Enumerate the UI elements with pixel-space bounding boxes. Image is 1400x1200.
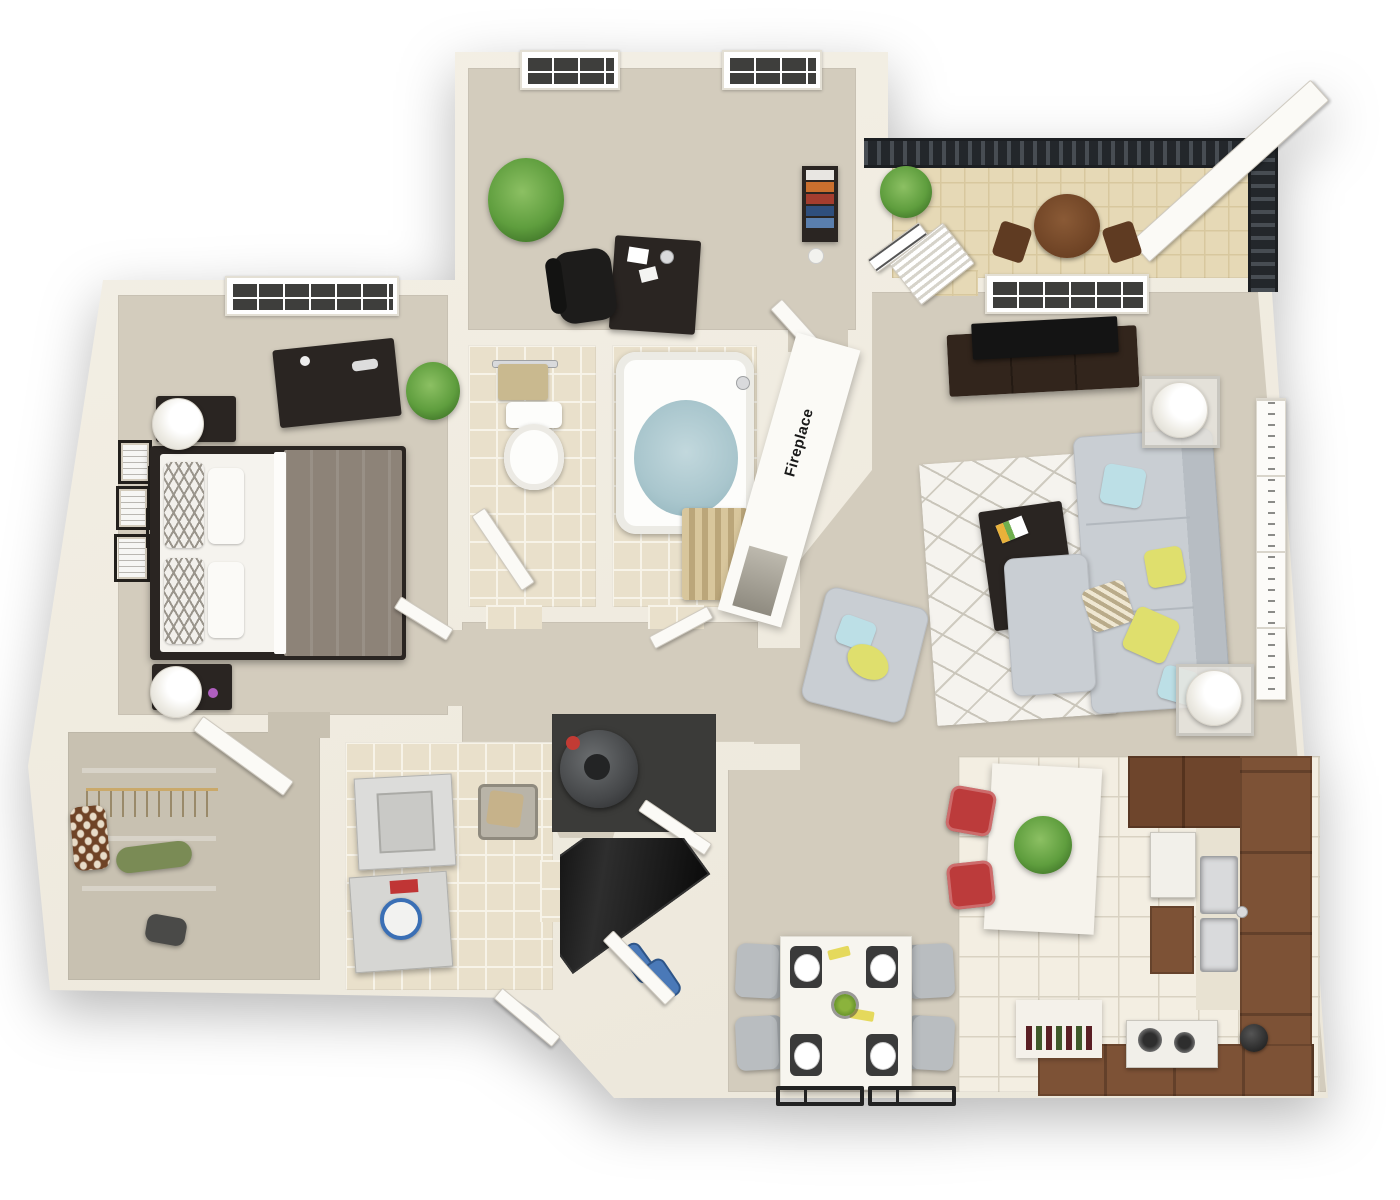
books bbox=[806, 170, 834, 180]
grate-rack bbox=[868, 1086, 956, 1106]
fridge bbox=[1150, 832, 1196, 898]
basket-clothes bbox=[486, 790, 524, 828]
upper-cabinets bbox=[1128, 756, 1242, 828]
wall-frame bbox=[116, 486, 150, 530]
stove-burner bbox=[1174, 1032, 1195, 1053]
centerpiece bbox=[834, 994, 856, 1016]
books bbox=[806, 218, 834, 228]
detergent-box bbox=[390, 879, 419, 894]
dining-chair bbox=[735, 1015, 786, 1071]
books bbox=[806, 182, 834, 192]
table-lamp-bottom bbox=[150, 666, 202, 718]
doorway-bedroom-closet bbox=[268, 712, 330, 738]
kettle bbox=[1240, 1024, 1268, 1052]
grate-rack bbox=[776, 1086, 864, 1106]
office-plant bbox=[488, 158, 564, 242]
dining-chair bbox=[735, 943, 786, 999]
balcony-plant bbox=[880, 166, 932, 218]
books bbox=[806, 194, 834, 204]
window-panes bbox=[231, 282, 393, 310]
office-window-right bbox=[722, 50, 822, 90]
window-panes bbox=[991, 280, 1143, 308]
water-heater-valve bbox=[566, 736, 580, 750]
bed-blanket bbox=[284, 450, 402, 656]
dining-chair bbox=[905, 943, 956, 999]
bed-pillow bbox=[208, 468, 244, 544]
dining-chair bbox=[905, 1015, 956, 1071]
sofa-chaise bbox=[1003, 553, 1096, 697]
doorway-hall-living bbox=[754, 648, 808, 744]
dresser-decor bbox=[300, 356, 310, 366]
shelf-flowers bbox=[808, 248, 824, 264]
patio-table bbox=[1034, 194, 1100, 258]
base-cabinet bbox=[1150, 906, 1194, 974]
closet-shelf bbox=[82, 768, 216, 773]
office-window-left bbox=[520, 50, 620, 90]
kitchen-sink bbox=[1200, 856, 1238, 914]
bedroom-plant bbox=[406, 362, 460, 420]
wall-art bbox=[1256, 398, 1286, 700]
desk-paper bbox=[627, 247, 649, 265]
bed-pillow bbox=[208, 562, 244, 638]
apartment-floor-plan: Fireplace bbox=[0, 0, 1400, 1200]
kitchen-sink bbox=[1200, 918, 1238, 972]
water-heater-cap bbox=[584, 754, 610, 780]
closet-shelf bbox=[82, 886, 216, 891]
window-panes bbox=[728, 56, 816, 84]
plate bbox=[870, 954, 896, 982]
plate bbox=[870, 1042, 896, 1070]
plate bbox=[794, 1042, 820, 1070]
sink-faucet bbox=[1236, 906, 1248, 918]
floor-lamp-bottom bbox=[1186, 670, 1242, 726]
floor-plan-stage: Fireplace bbox=[0, 0, 1400, 1200]
sofa-pillow-yellow bbox=[1143, 545, 1187, 589]
balcony-railing-top bbox=[864, 138, 1272, 168]
island-plant bbox=[1014, 816, 1072, 874]
office-desk bbox=[609, 235, 701, 335]
bed-pillow bbox=[164, 558, 204, 644]
dresser bbox=[272, 338, 401, 428]
toilet-bowl bbox=[504, 424, 564, 490]
towel bbox=[498, 364, 548, 400]
living-room-window bbox=[985, 274, 1149, 314]
bedroom-window bbox=[225, 276, 399, 316]
duffel-bag bbox=[69, 805, 110, 872]
bed-sheet-fold bbox=[274, 452, 286, 654]
plate bbox=[794, 954, 820, 982]
flower-vase bbox=[208, 688, 218, 698]
desk-lamp bbox=[660, 250, 674, 264]
bar-stool bbox=[946, 860, 997, 911]
wall-frame bbox=[114, 534, 150, 582]
washer-dial bbox=[380, 898, 422, 940]
tub-faucet bbox=[736, 376, 750, 390]
stove-burner bbox=[1138, 1028, 1162, 1052]
fireplace-label: Fireplace bbox=[781, 406, 817, 478]
dryer-door bbox=[376, 791, 435, 854]
floor-lamp-top bbox=[1152, 382, 1208, 438]
table-lamp-top bbox=[152, 398, 204, 450]
bathtub-water bbox=[634, 400, 738, 516]
books bbox=[806, 206, 834, 216]
bed-pillow bbox=[164, 462, 204, 548]
bar-stool bbox=[944, 784, 997, 837]
doorway-toilet-room bbox=[486, 605, 542, 629]
sofa-pillow-blue bbox=[1099, 463, 1147, 510]
fireplace-niche bbox=[732, 546, 788, 617]
window-panes bbox=[526, 56, 614, 84]
wall-frame bbox=[118, 440, 152, 484]
tv bbox=[971, 316, 1119, 360]
doorway-bedroom-hall bbox=[444, 630, 468, 706]
wine-bottles bbox=[1026, 1026, 1092, 1050]
